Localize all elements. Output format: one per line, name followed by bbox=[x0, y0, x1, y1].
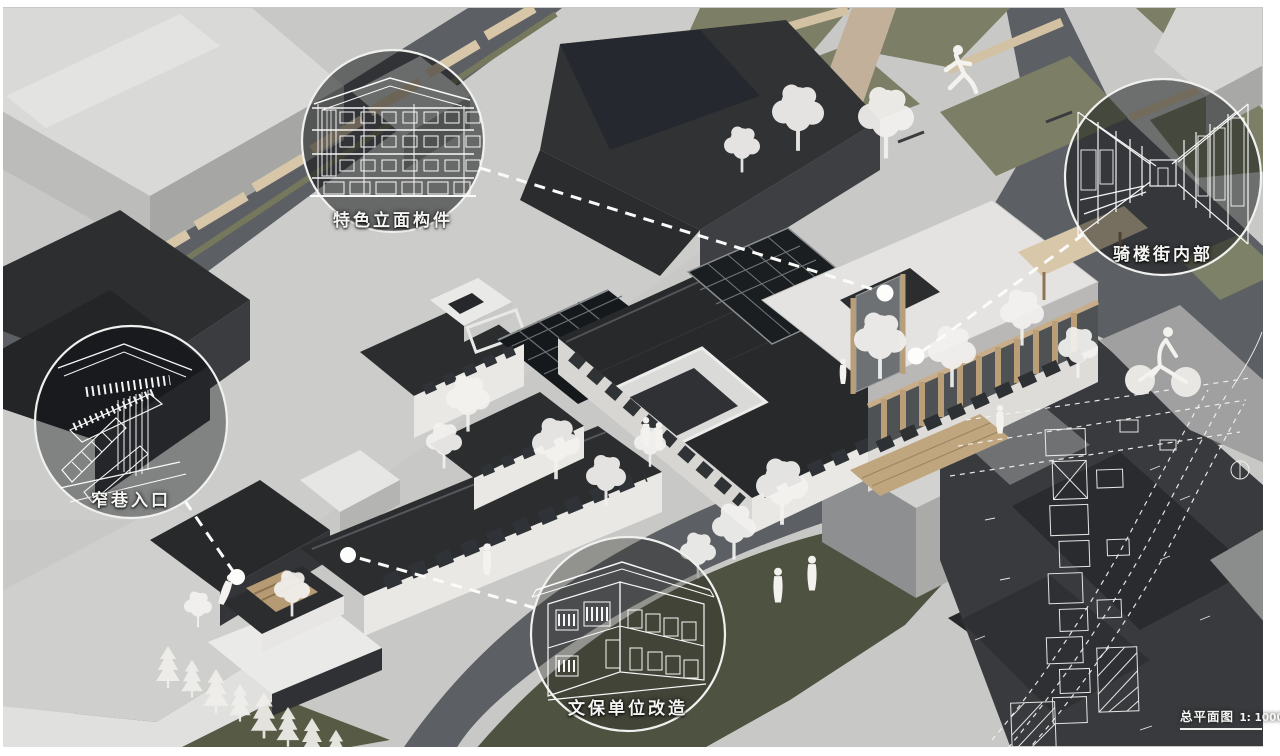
callout-circle-facade-components bbox=[302, 50, 484, 232]
scene-illustration bbox=[0, 0, 1280, 756]
callout-label-alley-entrance: 窄巷入口 bbox=[91, 486, 171, 511]
rendering-canvas: 特色立面构件 骑楼街内部 窄巷入口 文保单位改造 总平面图 1: 1000 bbox=[0, 0, 1280, 756]
site-plan-title-text: 总平面图 bbox=[1180, 709, 1234, 724]
site-plan-title: 总平面图 1: 1000 bbox=[1180, 706, 1262, 730]
callout-label-heritage-renovation: 文保单位改造 bbox=[568, 694, 688, 719]
callout-label-facade-components: 特色立面构件 bbox=[333, 206, 453, 231]
site-plan-scale: 1: 1000 bbox=[1239, 712, 1280, 724]
callout-label-arcade-interior: 骑楼街内部 bbox=[1113, 240, 1213, 265]
